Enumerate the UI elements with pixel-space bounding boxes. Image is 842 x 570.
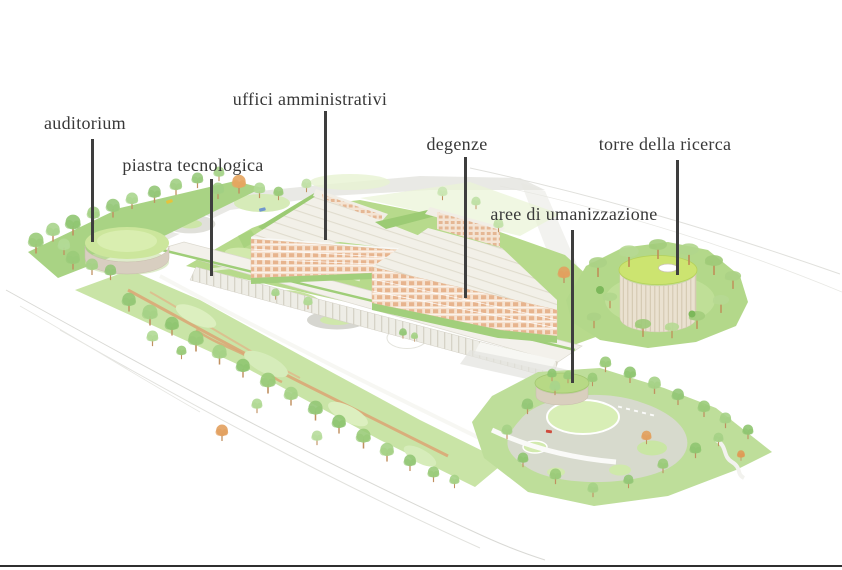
garden-pavilion [535, 373, 589, 405]
leader-line-piastra-tecnologica [210, 179, 213, 276]
label-piastra-tecnologica: piastra tecnologica [122, 156, 263, 176]
leader-line-degenze [464, 157, 467, 298]
leader-line-torre-della-ricerca [676, 160, 679, 275]
label-aree-di-umanizzazione: aree di umanizzazione [490, 205, 657, 225]
masterplan-illustration [0, 0, 842, 570]
leader-line-auditorium [91, 139, 94, 242]
masterplan-page: auditorium piastra tecnologica uffici am… [0, 0, 842, 570]
humanization-garden [472, 368, 772, 506]
research-tower-building [619, 256, 697, 333]
label-auditorium: auditorium [44, 114, 126, 134]
label-uffici-amministrativi: uffici amministrativi [233, 90, 387, 110]
label-degenze: degenze [426, 135, 487, 155]
leader-line-aree-di-umanizzazione [571, 230, 574, 383]
leader-line-uffici-amministrativi [324, 111, 327, 240]
label-torre-della-ricerca: torre della ricerca [599, 135, 732, 155]
bottom-window-edge [0, 565, 842, 567]
